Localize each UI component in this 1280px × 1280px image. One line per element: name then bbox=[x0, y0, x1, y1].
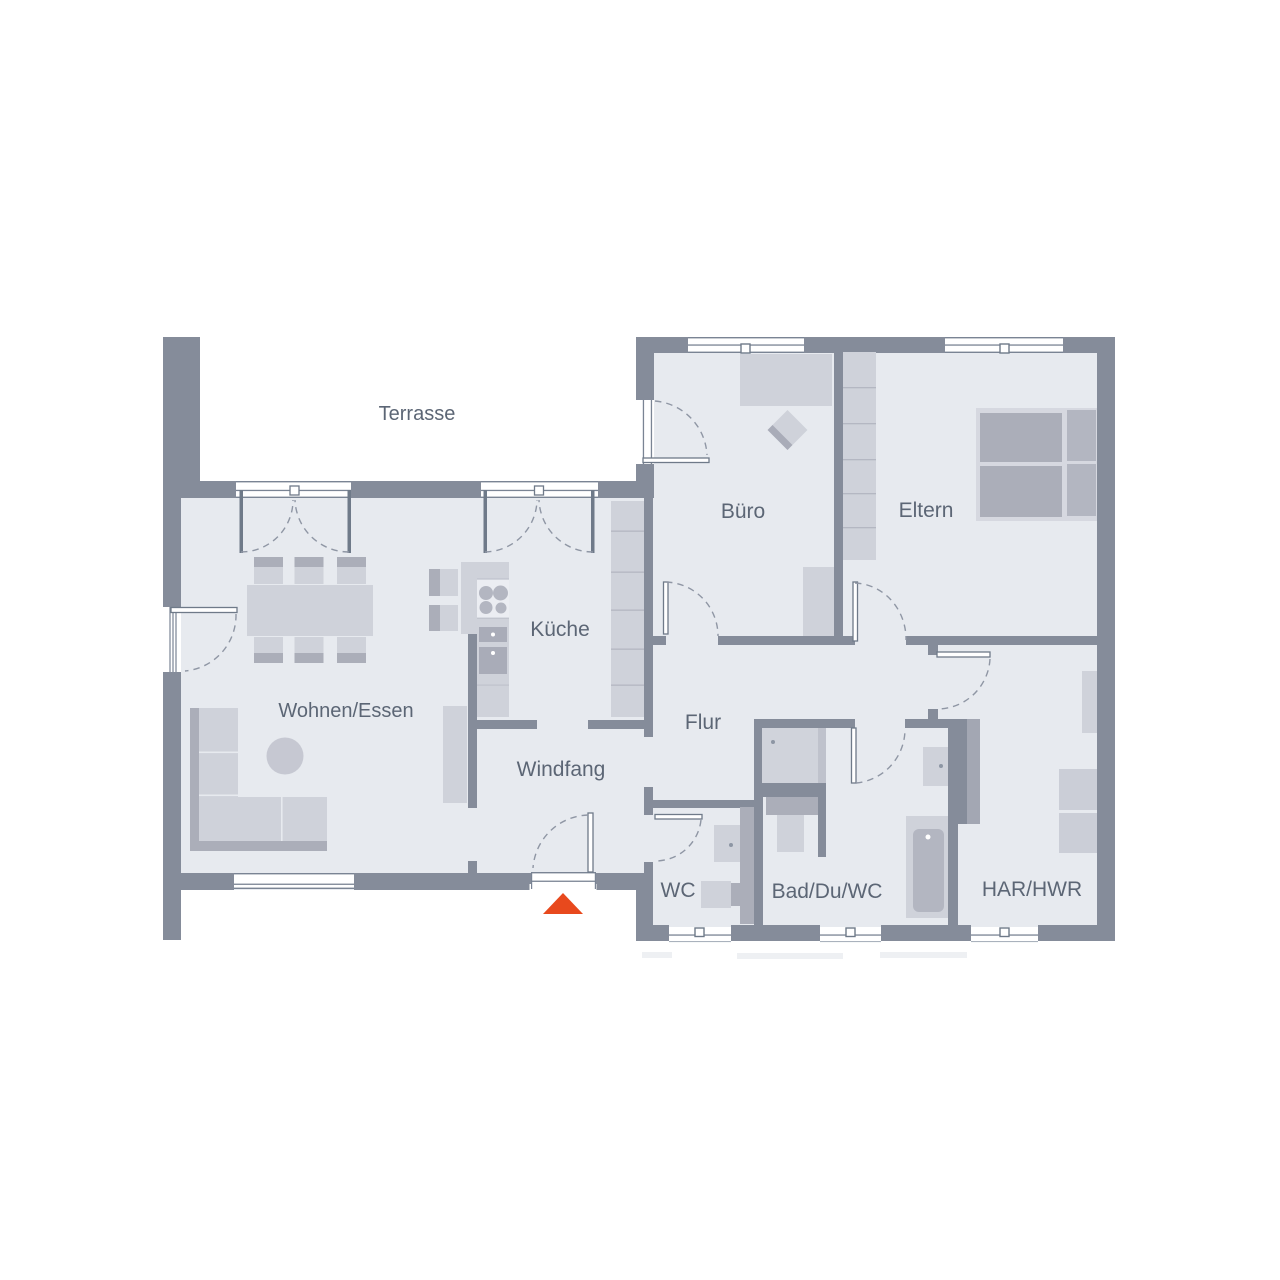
svg-text:Flur: Flur bbox=[685, 711, 721, 734]
svg-text:Terrasse: Terrasse bbox=[379, 403, 456, 425]
svg-text:Windfang: Windfang bbox=[517, 758, 606, 781]
svg-text:Eltern: Eltern bbox=[899, 499, 954, 522]
svg-text:Küche: Küche bbox=[530, 618, 590, 641]
svg-text:Bad/Du/WC: Bad/Du/WC bbox=[772, 880, 883, 903]
svg-text:Büro: Büro bbox=[721, 500, 765, 523]
svg-text:Wohnen/Essen: Wohnen/Essen bbox=[278, 700, 413, 722]
svg-text:WC: WC bbox=[661, 879, 696, 902]
svg-text:HAR/HWR: HAR/HWR bbox=[982, 878, 1082, 901]
